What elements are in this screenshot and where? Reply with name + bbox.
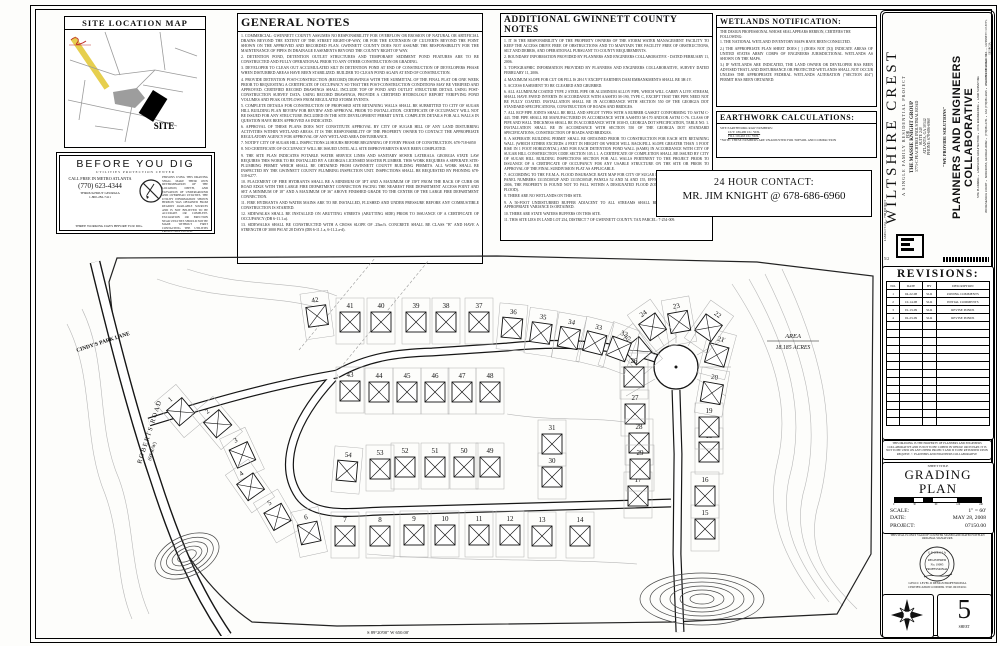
lot-41: 41 [336,298,364,344]
svg-text:30: 30 [549,457,557,465]
revisions-header: BY [922,282,936,290]
note-line: *NOTE: THESE NUMBERS ARE UNADJUSTED FOR … [720,138,873,142]
lot-32: 32 [598,322,640,375]
property-boundary [109,256,873,626]
note-line: 7. NOTIFY CITY OF SUGAR HILL INSPECTIONS… [241,141,479,146]
date-label: DATE: [890,515,906,521]
note-line: 2. BOUNDARY INFORMATION PROVIDED BY PLAN… [504,55,709,65]
lot-48: 48 [476,368,504,414]
revision-row [887,370,990,378]
scale-value: 1" = 60' [968,508,986,514]
lot-42: 42 [300,290,334,339]
wetlands-list: 1. THE NATIONAL WETLAND INVENTORY MAPS H… [720,40,873,82]
firm-address: 350 RESEARCH COURT ▪ NORCROSS, GEORGIA 3… [985,18,992,256]
svg-text:19: 19 [706,407,714,415]
wetlands-panel: WETLANDS NOTIFICATION: THE DESIGN PROFES… [716,15,877,107]
lot-23: 23 [661,296,697,346]
svg-text:5: 5 [266,498,273,507]
lot-37: 37 [465,298,493,344]
svg-text:26: 26 [631,357,639,365]
svg-text:51: 51 [432,447,440,455]
note-line: 8. A SEPERATE BUILDING PERMIT SHALL BE O… [504,137,709,171]
note-line: 3. DEVELOPER TO CLEAN OUT ACCUMULATED SI… [241,66,479,76]
seal-validity-note: THIS SEAL IS ONLY VALID IF COUNTER SIGNE… [884,534,991,541]
gswcc-line2: CERTIFICATION # 0000069 / EXP. 06/03/201… [882,586,993,590]
note-line: 9. THE SITE PLAN INDICATES POTABLE WATER… [241,154,479,179]
note-line: 11. THIS SITE LIES IN LAND LOT 254, DIST… [504,218,709,223]
wetlands-intro: THE DESIGN PROFESSIONAL WHOSE SEAL APPEA… [720,30,873,39]
detention-pond-right [640,573,764,625]
north-arrow-box [882,594,934,638]
general-notes-panel: GENERAL NOTES 1. COMMERCIAL: GWINNETT CO… [237,13,483,264]
lot-7: 7 [331,512,359,558]
svg-text:27: 27 [632,394,640,402]
note-line: 6. APPROVAL OF THESE PLANS DOES NOT CONS… [241,125,479,140]
lot-13: 13 [528,512,556,558]
lot-53: 53 [366,445,394,491]
svg-text:6: 6 [303,513,309,522]
lot-46: 46 [421,368,449,414]
lot-10: 10 [431,511,459,557]
note-line: 12. SIDEWALKS SHALL BE INSTALLED ON ABUT… [241,212,479,222]
lot-11: 11 [465,511,493,557]
scale-label: SCALE: [890,508,909,514]
lot-49: 49 [476,443,504,489]
site-location-map: SITE LOCATION MAP SITE [64,16,206,148]
svg-text:38: 38 [443,302,451,310]
revision-row [887,418,990,426]
earthwork-panel: EARTHWORK CALCULATIONS: SITE EARTHWORK R… [716,111,877,158]
lot-54: 54 [331,446,363,494]
svg-text:22: 22 [712,309,723,320]
client-phone: PHONE: 678-686-6960 [927,18,931,255]
note-line: 1. IT IS THE RESPONSIBILITY OF THE PROPE… [504,39,709,54]
grading-plan-drawing: 1234567891011121314151617181920212223242… [37,254,878,636]
lot-15: 15 [691,505,719,551]
call-free-line: CALL FREE IN METRO ATLANTA [64,176,136,181]
lot-51: 51 [421,443,449,489]
note-line: 4. PROVIDE DETENTION POST-CONSTRUCTION (… [241,78,479,103]
svg-text:7: 7 [343,516,347,524]
note-line: 8. NO CERTIFICATE OF OCCUPANCY WILL BE I… [241,147,479,152]
project-title-column: WILTSHIRE CREST A SINGLE FAMILY RESIDENT… [884,18,941,256]
revision-row [887,338,990,346]
before-you-dig-subtitle: UTILITIES PROTECTION CENTER [60,170,211,174]
note-line: 11. FIRE HYDRANTS AND WATER MAINS ARE TO… [241,201,479,211]
lot-40: 40 [367,298,395,344]
firm-name: PLANNERS AND ENGINEERS COLLABORATIVE [951,18,976,256]
revision-row [887,386,990,394]
sheet-title-line2: PLAN [883,482,993,496]
general-notes-list: 1. COMMERCIAL: GWINNETT COUNTY ASSUMES N… [238,32,482,236]
svg-text:37: 37 [476,302,484,310]
svg-text:29: 29 [637,449,645,457]
revisions-table: NO.DATEBYDESCRIPTION 104-22-08SLRZONING … [886,281,990,426]
ownership-note: THIS DRAWING IS THE PROPERTY OF PLANNERS… [882,440,992,460]
revision-row: 210-14-08SLRINITIAL COMMENTS [887,298,990,306]
project-value: 07150.00 [965,523,986,529]
georgia-phone: 1-800-282-7411 [64,195,136,199]
svg-text:53: 53 [377,449,385,457]
site-location-map-drawing: SITE [65,30,201,146]
drawing-sheet: SITE LOCATION MAP SITE [0,0,1000,646]
svg-text:45: 45 [404,372,412,380]
svg-text:34: 34 [567,318,576,327]
date-value: MAY 28, 2008 [953,515,986,521]
svg-text:40: 40 [378,302,386,310]
svg-text:46: 46 [432,372,440,380]
svg-text:28: 28 [636,423,644,431]
lot-14: 14 [566,512,594,558]
before-you-dig-title: BEFORE YOU DIG [60,158,211,170]
revision-row [887,354,990,362]
svg-text:G E O R G I A: G E O R G I A [928,551,947,555]
note-line: 2.) THE APPROPRIATE PLAN SHEET DOES [ ] … [720,47,873,62]
svg-text:16: 16 [702,476,710,484]
note-line: 2. DETENTION POND, DETENTION OUTLET STRU… [241,55,479,65]
svg-text:PROFESSIONAL: PROFESSIONAL [926,567,948,571]
before-you-dig-box: BEFORE YOU DIG UTILITIES PROTECTION CENT… [56,152,215,234]
revision-row [887,330,990,338]
north-arrow-compass [883,595,931,635]
revision-row [887,322,990,330]
firm-tagline: "WE PROVIDE SOLUTIONS" [942,18,951,256]
firm-services: SITE PLANNING ▪ LANDSCAPE ARCHITECTURE ▪… [977,18,985,256]
lot-12: 12 [496,511,524,557]
note-line: 5. COMPLETE DETAILS FOR CONSTRUCTION OF … [241,104,479,124]
revision-row [887,410,990,418]
contact-line1: 24 HOUR CONTACT: [657,177,871,188]
svg-text:12: 12 [507,515,515,523]
revisions-header: DATE [900,282,923,290]
road-network [95,262,698,636]
note-line: 1. COMMERCIAL: GWINNETT COUNTY ASSUMES N… [241,34,479,54]
boundary-bearing-label: S 89°20'00" W 650.00' [367,630,409,635]
general-notes-title: GENERAL NOTES [238,14,482,32]
plot-stamp: 5/2 [884,256,991,265]
note-line: 7. ALL RCP PIPE JOINTS SHALL BE BELL AND… [504,111,709,136]
note-line: 3. TOPOGRAPHIC INFORMATION PROVIDED BY P… [504,66,709,76]
svg-text:48: 48 [487,372,495,380]
lot-39: 39 [402,298,430,344]
revision-row [887,378,990,386]
note-line: 1. THE NATIONAL WETLAND INVENTORY MAPS H… [720,40,873,45]
title-block-sidebar: CITY OF SUGAR HILL — GWINNETT COUNTY, GE… [880,10,995,638]
note-line: 13. SIDEWALKS SHALL BE CONSTRUCTED WITH … [241,223,479,233]
svg-text:No. 19095: No. 19095 [931,563,944,567]
easement-line-2 [299,258,375,350]
revision-row: 301-13-09SLRREVISE PONDS [887,306,990,314]
lot-52: 52 [391,443,419,489]
svg-text:44: 44 [376,372,384,380]
note-line: 4. MAXIMUM SLOPE FOR CUT OR FILL IS 2H:1… [504,78,709,83]
lot-44: 44 [365,368,393,414]
revision-row: 104-22-08SLRZONING COMMENTS [887,290,990,298]
lot-50: 50 [450,443,478,489]
svg-text:47: 47 [459,372,467,380]
firm-logo [896,234,924,258]
revision-row [887,362,990,370]
scale-bar-ticks: 03060120240 [893,503,983,506]
svg-text:31: 31 [549,424,557,432]
svg-text:52: 52 [402,447,410,455]
sheet-title-line1: GRADING [883,468,993,482]
svg-text:4: 4 [238,469,246,478]
lot-34: 34 [551,312,587,362]
revision-row [887,394,990,402]
site-label: SITE [154,121,175,131]
revisions-title: REVISIONS: [883,268,993,280]
project-name: WILTSHIRE CREST [884,18,901,256]
svg-text:54: 54 [344,451,352,460]
revisions-header: DESCRIPTION [936,282,989,290]
note-line: 5. ACCESS EASEMENT TO BE CLEARED AND GRU… [504,84,709,89]
before-you-dig-inner-border: BEFORE YOU DIG UTILITIES PROTECTION CENT… [59,155,212,231]
svg-text:43: 43 [347,371,355,379]
project-label: PROJECT: [890,523,915,529]
county-notes-title: ADDITIONAL GWINNETT COUNTY NOTES [501,14,712,37]
gswcc-certification: GSWCC LEVEL II DESIGN PROFESSIONAL CERTI… [882,582,993,590]
sheet-title-block: SHEET TITLE GRADING PLAN 03060120240 SCA… [882,462,994,534]
before-you-dig-phones: CALL FREE IN METRO ATLANTA (770) 623-434… [64,176,136,199]
svg-text:8: 8 [378,516,382,524]
svg-text:9: 9 [412,515,416,523]
site-parcel-shape [139,90,168,122]
note-line: 10. PLACEMENT OF FIRE HYDRANTS SHALL BE … [241,180,479,200]
wetlands-title: WETLANDS NOTIFICATION: [717,16,876,28]
svg-text:14: 14 [577,516,585,524]
plot-stamp-barcode [943,257,989,262]
earthwork-lines: SITE EARTHWORK RAW NUMBERS:CUT: 186,480 … [717,124,876,145]
lot-8: 8 [366,512,394,558]
svg-text:36: 36 [509,308,517,317]
svg-text:13: 13 [539,516,547,524]
contact-box: 24 HOUR CONTACT: MR. JIM KNIGHT @ 678-68… [656,170,872,217]
svg-text:50: 50 [461,447,469,455]
before-you-dig-disclaimer: PERSONS USING THIS DRAWING SHALL MAKE TH… [162,176,208,234]
earthwork-title: EARTHWORK CALCULATIONS: [717,112,876,124]
svg-text:3: 3 [232,436,239,445]
revision-row [887,402,990,410]
lot-38: 38 [432,298,460,344]
revision-row: 402-23-09SLRREVISE PONDS [887,314,990,322]
lot-47: 47 [448,368,476,414]
svg-text:23: 23 [672,302,681,311]
map-building-blob [113,88,145,108]
three-working-days-line: THREE WORKING DAYS BEFORE YOU DIG. [64,224,154,228]
svg-text:33: 33 [594,323,603,333]
svg-text:49: 49 [487,447,495,455]
professional-seal: G E O R G I A REGISTERED No. 19095 PROFE… [916,545,958,583]
revision-row [887,346,990,354]
metro-phone: (770) 623-4344 [64,182,136,190]
svg-text:15: 15 [702,509,710,517]
svg-text:41: 41 [347,302,355,310]
lot-5: 5 [253,489,300,543]
revisions-block: REVISIONS: NO.DATEBYDESCRIPTION 104-22-0… [882,266,994,440]
ownership-note-text: THIS DRAWING IS THE PROPERTY OF PLANNERS… [885,442,989,457]
lot-45: 45 [393,368,421,414]
sheet-number-label: SHEET [938,625,991,629]
plot-stamp-text: 5/2 [884,256,889,261]
lot-30: 30 [538,453,566,499]
sheet-number-box: 5 SHEET [937,594,992,638]
revisions-header: NO. [887,282,900,290]
no-dig-icon [138,178,164,204]
contact-line2: MR. JIM KNIGHT @ 678-686-6960 [657,190,871,202]
sheet-number: 5 [938,595,991,625]
svg-text:42: 42 [311,296,320,305]
svg-text:39: 39 [413,302,421,310]
note-line: 3.) IF WETLANDS ARE INDICATED, THE LAND … [720,63,873,83]
svg-text:10: 10 [442,515,450,523]
svg-text:AREA: AREA [784,333,801,340]
svg-text:35: 35 [539,313,548,322]
lot-9: 9 [400,511,428,557]
map-roads [68,32,197,142]
site-location-map-title: SITE LOCATION MAP [65,17,205,30]
svg-text:18.185 ACRES: 18.185 ACRES [776,345,811,351]
svg-text:1: 1 [166,395,174,404]
svg-text:11: 11 [476,515,483,523]
svg-text:REGISTERED: REGISTERED [928,558,947,562]
lots-layer: 1234567891011121314151617181920212223242… [154,290,736,558]
note-line: 6. ALL ALUMINUM COATED TYPE 2 STEEL PIPE… [504,90,709,110]
